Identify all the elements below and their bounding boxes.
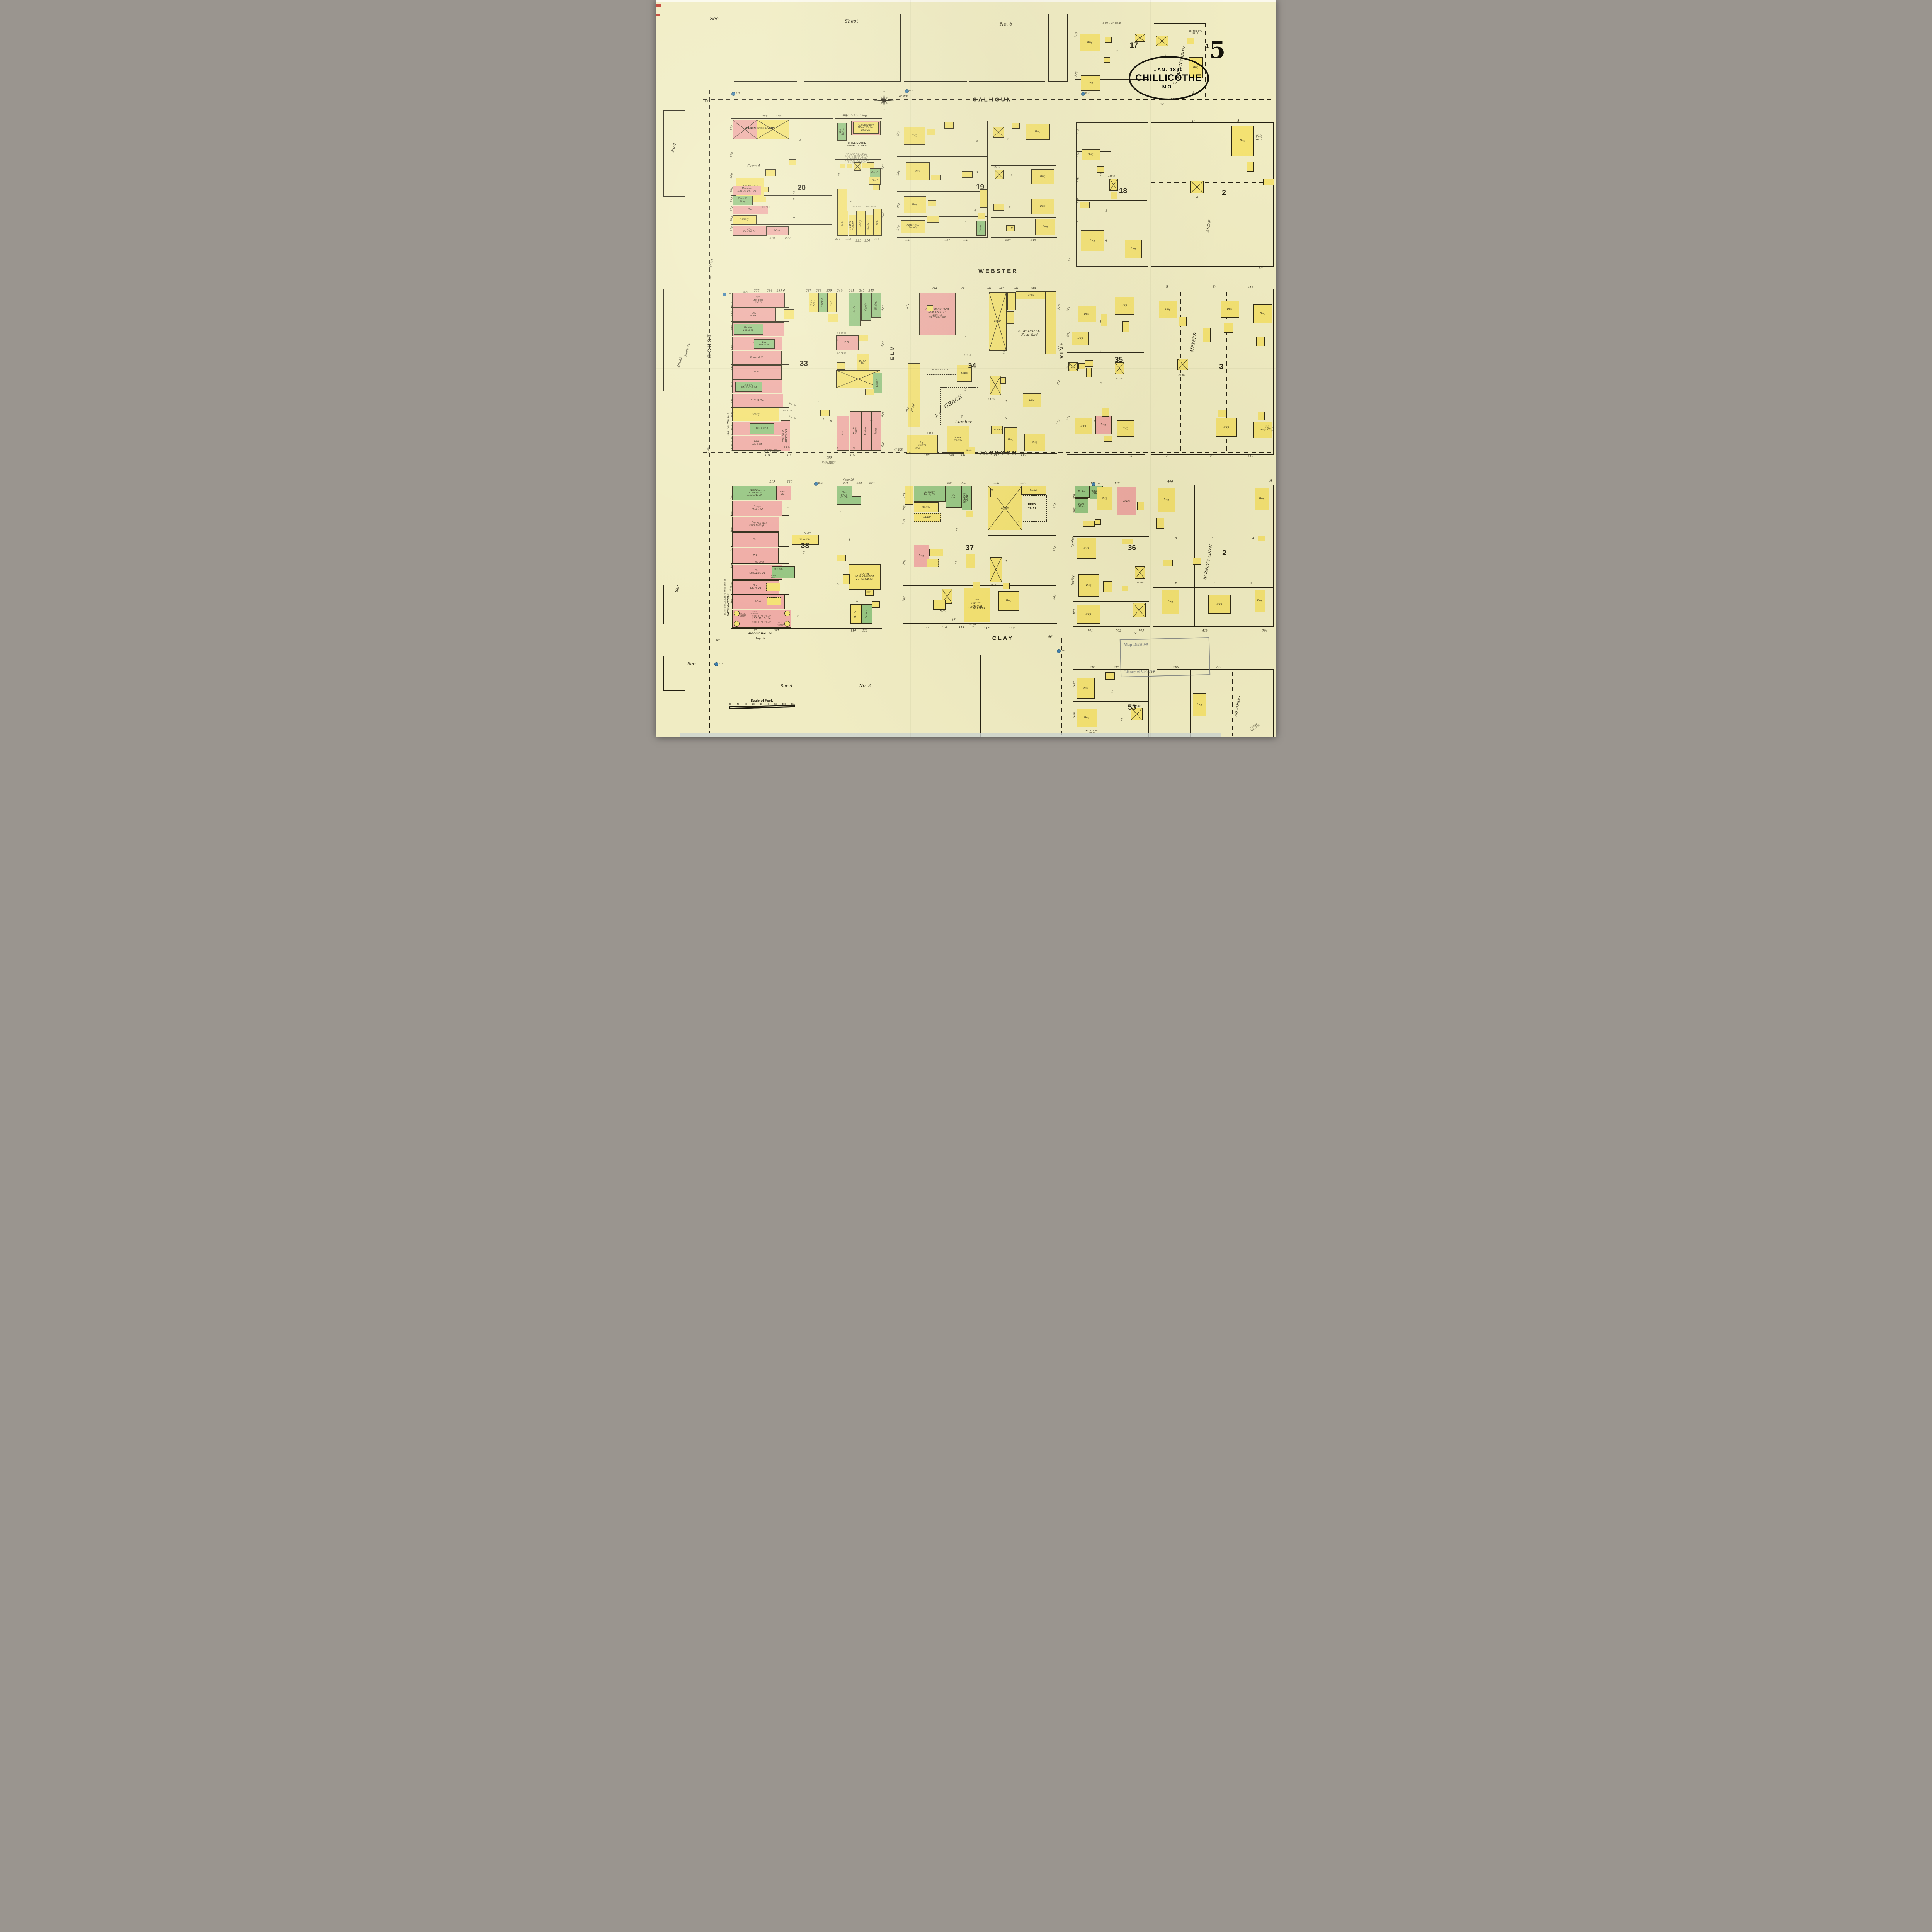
street-name: CLAY [992, 635, 1014, 642]
lot-number: 115 [984, 627, 989, 630]
map-note: WOODEN POSTS 1ST [752, 621, 771, 623]
lot-number: 6 [856, 600, 858, 603]
building [1045, 291, 1056, 354]
lot-number: 225 [961, 481, 966, 485]
lot-number: 66' [1259, 267, 1263, 270]
building: 1ST BAPTIST CHURCH 16' TO EAVES [964, 588, 990, 622]
lot-number: 6 [1175, 581, 1177, 585]
building-label: Dwg [1101, 424, 1106, 427]
map-note: 15' TO 1 STY FR. D. [1102, 22, 1121, 24]
lot-line [1073, 601, 1149, 602]
building-label: Carp'r [876, 379, 879, 386]
hydrant-label: D.H. [1096, 483, 1101, 485]
city-block [663, 289, 685, 391]
building-label: Paint Shop [1078, 503, 1085, 509]
building-label: Dwg [1260, 313, 1265, 315]
lot-number: 1 [1100, 320, 1102, 323]
building [1104, 436, 1112, 442]
lot-number: 719½ [1108, 174, 1115, 177]
building-label: TAILOR & SHOE MKR [783, 429, 788, 443]
water-hydrant-marker: D.H. [714, 662, 718, 666]
building [854, 162, 861, 171]
building [784, 611, 790, 616]
lot-number: 230 [1030, 238, 1036, 242]
lot-number: 8 [1250, 581, 1252, 585]
lot-number: 502½ [990, 583, 998, 587]
building [784, 621, 790, 627]
script-label: See [710, 16, 718, 21]
lot-number: 245 [961, 287, 966, 290]
building-label: SHED [961, 372, 968, 375]
lot-number: 4 [1212, 536, 1214, 540]
lot-number: 423 [1208, 454, 1213, 458]
lot-number: 241 [849, 289, 854, 293]
hydrant-label: D.H. [727, 293, 732, 295]
building-label: WAGON SHOP [964, 493, 969, 503]
building: Dwg [1077, 709, 1097, 727]
lot-number: 705 [1114, 665, 1119, 669]
water-hydrant-marker: D.H. [731, 92, 735, 96]
lot-number: A [1237, 119, 1240, 122]
block-number: 2 [1222, 549, 1226, 558]
city-block [904, 655, 976, 737]
map-note: SHOE MKR [780, 491, 786, 495]
lot-number: 109 [948, 454, 954, 457]
building [993, 204, 1004, 211]
lot-number: B [1196, 196, 1198, 199]
building: Gro. [732, 532, 779, 547]
building: VAC. [828, 293, 837, 312]
street-centerline [1180, 292, 1181, 452]
building-label: Dwg [1088, 153, 1094, 156]
block-number: 34 [968, 362, 976, 371]
water-hydrant-marker: D.H. [905, 89, 909, 93]
block-number: 3 [1219, 363, 1223, 371]
building: KERN HO. Boardg [901, 220, 925, 233]
building: Carp'r [870, 168, 881, 177]
map-note: NO OPGS [758, 522, 767, 524]
building: Feed [869, 177, 881, 185]
building: Dwg [1035, 219, 1055, 235]
lot-line [1194, 485, 1195, 626]
building-label: Feed [872, 180, 878, 182]
lot-number: 108 [924, 454, 929, 457]
building: Dwg [1026, 124, 1050, 140]
lot-number: 2 [964, 335, 966, 338]
stamp-line-1: Map Division [1123, 640, 1205, 647]
building-label: Dwg [1084, 547, 1089, 550]
city-block [904, 14, 967, 82]
lot-number: 702 [1116, 629, 1121, 633]
building [1137, 502, 1144, 510]
map-note: NO OPGS [755, 561, 764, 563]
building: Dwg [1159, 301, 1177, 318]
lot-number: E [1166, 285, 1168, 289]
block-number: 20 [798, 184, 806, 192]
building [847, 164, 852, 168]
building: SHED [1021, 486, 1046, 495]
building [1122, 539, 1133, 544]
lot-number: H [1192, 120, 1195, 123]
building [789, 159, 796, 165]
building-label: Dwg [1164, 499, 1169, 502]
lot-number: 8 [850, 199, 852, 203]
lot-number: 249 [1030, 287, 1036, 290]
building [1104, 57, 1110, 63]
building [859, 335, 868, 341]
lot-number: 5 [1009, 205, 1011, 209]
building-label: P.O. [753, 554, 757, 557]
lot-number: 235-6 [777, 289, 785, 293]
lot-number: 701 [1087, 629, 1093, 633]
building-label: Tinw. & Shop [738, 198, 747, 203]
building: Sal. [837, 416, 849, 451]
lot-number: 222 [845, 237, 851, 241]
building-label: Carp'r [871, 172, 879, 174]
building: SHOE SHOP [809, 293, 818, 312]
building-label: Carp'r [865, 303, 867, 310]
lot-number: 222 [856, 481, 862, 485]
building: Gro. [873, 209, 882, 236]
building: Dwg [1117, 420, 1134, 437]
building-label: Carp'r [853, 306, 856, 313]
map-note: NO OPGS [837, 332, 846, 334]
city-block [817, 662, 850, 737]
building-label: Dwg [1087, 41, 1093, 44]
script-label: 6" W.P. [899, 95, 908, 98]
lot-number: 219 [769, 236, 775, 240]
water-hydrant-marker: D.H. [1081, 92, 1085, 96]
map-note: 20' ABV. RF [970, 623, 977, 627]
map-note: OPEN 1ST [783, 410, 792, 412]
hydrant-label: D.H. [719, 663, 724, 665]
map-note: WOODEN POSTS 1ST [752, 615, 771, 617]
building-label: Mill'y [859, 220, 862, 227]
lot-number: 227 [1020, 481, 1026, 485]
lot-number: 1 [1111, 690, 1113, 694]
lot-number: 7 [793, 217, 795, 220]
building: (VENEERED) Wood Wk 1st Dwg 2d [853, 122, 879, 134]
building-label: Hardw. TIN SHOP 2d [741, 384, 757, 389]
city-block [734, 14, 797, 82]
lot-number: 4 [1005, 560, 1007, 563]
building-label: 1ST BAPTIST CHURCH 16' TO EAVES [968, 600, 985, 611]
building-label: Dwg [1088, 82, 1093, 85]
lot-number: 66' [1160, 103, 1164, 106]
street-name: ELM [889, 345, 895, 360]
block-number: 38 [801, 542, 809, 550]
building: W. Ho. [836, 335, 859, 350]
lot-number: 5 [1005, 417, 1007, 420]
lot-number: 2 [787, 505, 789, 509]
building: Bl. Sm. [871, 293, 881, 318]
script-label: Off. [990, 489, 993, 491]
block-number: 36 [1128, 544, 1136, 553]
lot-number: 224 [947, 481, 952, 485]
lot-number: 221 [843, 481, 848, 485]
building-label: Dwg [1259, 498, 1265, 500]
building-label: Hardw. Tin Shop [743, 327, 753, 332]
building [1156, 36, 1168, 46]
building: FEED [989, 292, 1007, 351]
lot-line [731, 563, 789, 564]
building-label: Dwg [1084, 313, 1090, 316]
building-label: Dwg [912, 204, 918, 206]
building: Reposity Paintg 2d [914, 486, 946, 502]
lot-number: 1 [837, 138, 839, 142]
building [990, 557, 1002, 582]
building-label: Dwg [1078, 337, 1083, 340]
hydrant-label: D.H. [818, 482, 823, 485]
building [1105, 37, 1112, 43]
lot-number: 504½ [804, 532, 811, 535]
lot-number: 112 [1020, 454, 1026, 457]
building [944, 122, 954, 129]
map-note: NO OPGS [761, 206, 770, 208]
building [990, 376, 1001, 395]
lot-number: 423½ [1178, 374, 1185, 377]
building-label: Dwg [1006, 600, 1012, 602]
water-hydrant-marker: D.H. [1057, 649, 1061, 653]
building-label: Clo. B.&S. [750, 312, 757, 318]
lot-number: 226 [993, 481, 999, 485]
building: Dwgs [1117, 487, 1136, 515]
lot-number: 5 [1175, 536, 1177, 540]
street-name: WEBSTER [978, 268, 1018, 275]
building-label: Variety [740, 218, 749, 221]
lot-number: 219 [769, 480, 775, 483]
lot-number: H [1269, 479, 1272, 483]
building [828, 314, 838, 322]
building [978, 213, 985, 219]
building: Dwg [1231, 126, 1254, 156]
building-label: Dwg [1043, 226, 1048, 228]
lot-number: 223 [855, 239, 861, 242]
building-label: Gro. [876, 219, 879, 224]
lot-number: 1 [837, 338, 839, 342]
block-number: 18 [1119, 187, 1127, 196]
building-label: Livery [1001, 507, 1009, 510]
building: Gro. Dentist 2d [733, 226, 767, 236]
sheet-number: 5 [1209, 37, 1226, 64]
building [734, 611, 740, 616]
script-label: 4" W.P. [894, 448, 903, 451]
script-label: Sheet [780, 684, 793, 689]
building [843, 574, 850, 584]
building-label: Lumber W. Ho. [954, 437, 963, 442]
building: Dwg [1023, 393, 1041, 407]
building-label: W. Ho. [922, 506, 930, 509]
lot-number: 2 [1100, 173, 1102, 177]
map-note: OVEN BAS'T [771, 575, 776, 578]
lot-number: 8 [830, 420, 832, 423]
map-label: FEED YARD [1028, 503, 1036, 510]
svg-text:E: E [892, 100, 893, 102]
lot-line [731, 594, 789, 595]
lot-line [906, 425, 1056, 425]
building: Sal. & Billds [850, 411, 861, 451]
building [927, 216, 939, 223]
lot-number: 228 [963, 238, 968, 242]
building [734, 621, 740, 627]
building [1105, 672, 1115, 680]
lot-number: 116 [1009, 627, 1014, 630]
building-label: Books & C. [750, 357, 764, 359]
yard-label: SHINGLES & LATH [932, 369, 951, 371]
building: CARP'R [818, 293, 828, 312]
building [1000, 377, 1006, 384]
building: TIN SHOP [750, 423, 774, 434]
building: Dwg [1208, 595, 1231, 614]
building: Dwg [1077, 605, 1100, 624]
building [1085, 360, 1093, 367]
building: Barber [861, 411, 871, 451]
building [1187, 38, 1194, 44]
building [784, 309, 794, 319]
building: Cigars Gent's Furn'g [732, 517, 779, 532]
city-block [804, 14, 901, 82]
water-hydrant-marker: D.H. [723, 293, 726, 296]
building-label: D. G. [754, 371, 760, 374]
lot-number: 247 [998, 287, 1004, 290]
building [927, 305, 933, 311]
scan-artifact [656, 4, 661, 7]
building-label: Dwg [1032, 441, 1037, 444]
building-label: Gro. OFF'S 2d [750, 585, 761, 590]
lot-number: C [1068, 258, 1070, 262]
lot-number: 2 [1100, 349, 1102, 353]
building: OLD BAP. CHURCH NOW USED AS Ware Ho. 25'… [919, 293, 956, 335]
building: Harness DRESS MKG 2d [733, 186, 761, 195]
building [1133, 603, 1146, 617]
lot-number: 243 [868, 289, 874, 293]
building: Dwg [1081, 75, 1100, 91]
compass-rose-icon: N S W E [873, 90, 895, 113]
building-label: Dwg [1086, 613, 1091, 616]
lot-number: 229 [1005, 238, 1010, 242]
building: SOUTH M. E. CHURCH 20' TO EAVES [849, 564, 881, 590]
stamp-line-2: Library of Congress [1124, 668, 1206, 674]
map-note: 90' TO 2 STY FR. D. [1256, 134, 1262, 141]
map-label: WILSON BROS LIVERY [745, 127, 775, 130]
building: Shed [1016, 291, 1047, 299]
lot-line [731, 176, 832, 176]
building: Dwg [1255, 488, 1269, 510]
lot-number: 114 [959, 625, 964, 629]
building-label: Cont'y [752, 413, 760, 416]
lot-number: 2 [1121, 718, 1123, 721]
building: Dwg [1004, 427, 1017, 452]
lot-line [897, 156, 987, 157]
building: Bl. Sm. [1075, 486, 1090, 498]
street-centerline [709, 90, 710, 733]
building [1109, 179, 1118, 191]
lot-line [731, 609, 789, 609]
building [1177, 359, 1188, 370]
building: Dwg [1095, 416, 1112, 434]
svg-text:S: S [883, 109, 884, 111]
building: Barber [866, 215, 873, 236]
building-label: Barber [865, 427, 867, 435]
building [862, 163, 867, 168]
building: Hardw. TIN SHOP 2d [735, 382, 762, 392]
building-label: SEW'G MACHS [850, 221, 855, 230]
building-label: Drugs Photo. 3d [752, 506, 763, 511]
lot-number: 66' [708, 275, 713, 280]
lot-number: 239 [826, 289, 832, 293]
building [753, 197, 766, 202]
water-hydrant-marker: D.H. [1092, 482, 1095, 486]
lot-number: 715½ [1116, 377, 1123, 380]
building-label: Sal. & Billds [853, 427, 858, 435]
block-number: 2 [1222, 189, 1226, 197]
building: Dwg [1193, 693, 1206, 716]
building [873, 185, 880, 190]
building: Paint Shop [1075, 498, 1088, 513]
lot-number: 1½ [852, 447, 855, 450]
lot-number: 4 [1011, 173, 1013, 177]
building-label: Meat [875, 428, 878, 434]
street-name: CALHOUN [973, 97, 1012, 103]
building: W.HO. 1½ [857, 354, 869, 372]
lot-number: 108 [752, 628, 757, 632]
script-label: No. 6 [1000, 21, 1012, 27]
script-label: BROWNING HO. [727, 413, 730, 436]
building: Dwg [1075, 418, 1092, 434]
lot-line [991, 217, 1056, 218]
script-label: S. WADDELL, Feed Yard [1018, 329, 1041, 337]
building-label: Dwg [912, 134, 917, 137]
block-number: 37 [966, 544, 974, 553]
lot-line [1185, 122, 1185, 182]
building [966, 554, 975, 568]
hydrant-label: D.H. [736, 92, 741, 95]
lot-number: 66' [716, 639, 720, 642]
building-label: W.HO. 1½ [859, 360, 866, 366]
building: D. G. & Clo. [732, 394, 783, 408]
building [1097, 166, 1104, 173]
building-label: Dwg [1122, 304, 1127, 307]
lot-number: 1 [1003, 351, 1005, 354]
map-date: JAN. 1890 [1154, 67, 1183, 72]
lot-number: 4 [844, 362, 846, 366]
lot-number: F [1166, 454, 1168, 458]
building: Cont'y [732, 408, 779, 421]
lot-number: 1 [1099, 147, 1101, 151]
lot-number: 226 [905, 238, 910, 242]
building: Dwg [1255, 590, 1265, 612]
building: Hardw. TIN SHOP 2d INS. OFF. 2d [732, 486, 776, 500]
building: WAGON SHOP [962, 486, 972, 510]
lot-number: 111 [993, 454, 999, 457]
building [1193, 558, 1201, 565]
building-label: Ware Ho. [799, 539, 810, 541]
building-label: Dwg [1102, 497, 1107, 500]
building-label: Meat [774, 230, 781, 232]
building: Dwg [1097, 487, 1112, 510]
lot-number: 8 [1011, 226, 1013, 230]
building: Dwg [1221, 301, 1239, 318]
building [762, 187, 769, 192]
lot-number: G [1129, 454, 1132, 458]
building-label: Bl. Sm. [1078, 491, 1087, 493]
lot-number: 233 [754, 289, 759, 293]
map-note: KETTLE B. [774, 568, 783, 570]
building [1135, 566, 1145, 579]
building [928, 200, 936, 206]
building [962, 171, 973, 178]
block-number: 17 [1130, 41, 1138, 50]
